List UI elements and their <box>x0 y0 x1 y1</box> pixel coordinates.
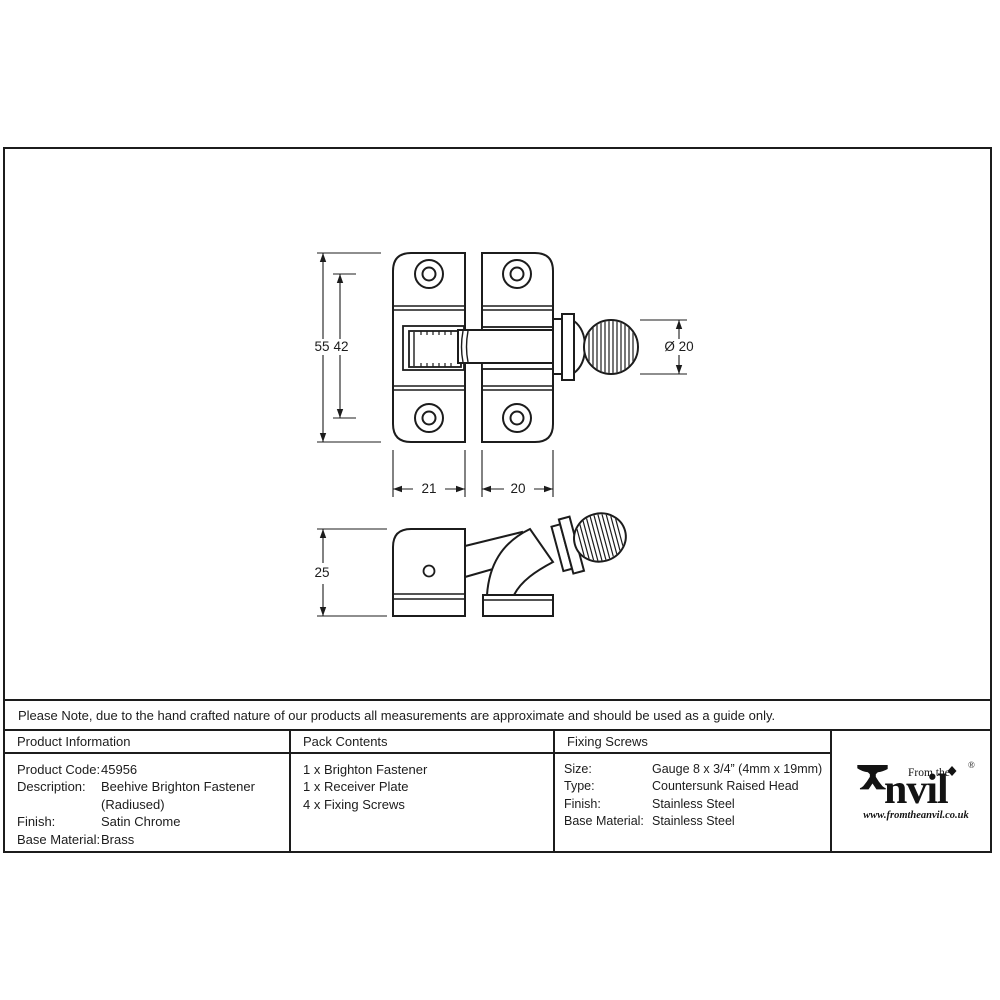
fixing-screws-header: Fixing Screws <box>555 731 830 754</box>
from-the-anvil-logo: nvil From the ® www.fromtheanvil.co.uk <box>832 741 990 841</box>
screw-size-row: Size: Gauge 8 x 3/4” (4mm x 19mm) <box>564 761 822 778</box>
logo-website: www.fromtheanvil.co.uk <box>863 810 969 821</box>
base-material-row: Base Material: Brass <box>17 831 281 848</box>
brand-logo-cell: nvil From the ® www.fromtheanvil.co.uk <box>832 731 990 851</box>
screw-type-row: Type: Countersunk Raised Head <box>564 778 822 795</box>
registered-mark: ® <box>968 760 975 770</box>
description-row: Description: Beehive Brighton Fastener <box>17 778 281 795</box>
pack-item: 1 x Receiver Plate <box>303 778 545 795</box>
description-row-2: (Radiused) <box>17 796 281 813</box>
screw-base-material-row: Base Material: Stainless Steel <box>564 813 822 830</box>
sheet-border: Please Note, due to the hand crafted nat… <box>3 147 992 853</box>
pack-item: 4 x Fixing Screws <box>303 796 545 813</box>
spec-table: Product Information Product Code: 45956 … <box>5 729 990 851</box>
pack-contents-column: Pack Contents 1 x Brighton Fastener 1 x … <box>291 731 555 851</box>
measurement-note-text: Please Note, due to the hand crafted nat… <box>18 708 775 723</box>
spec-sheet-page: 55 42 Ø 20 21 20 25 <box>0 0 1000 1000</box>
fixing-screws-column: Fixing Screws Size: Gauge 8 x 3/4” (4mm … <box>555 731 832 851</box>
logo-tagline: From the <box>908 767 950 779</box>
measurement-note-row: Please Note, due to the hand crafted nat… <box>5 699 990 729</box>
pack-item: 1 x Brighton Fastener <box>303 761 545 778</box>
product-information-column: Product Information Product Code: 45956 … <box>5 731 291 851</box>
product-code-row: Product Code: 45956 <box>17 761 281 778</box>
pack-contents-header: Pack Contents <box>291 731 553 754</box>
product-information-header: Product Information <box>5 731 289 754</box>
screw-finish-row: Finish: Stainless Steel <box>564 796 822 813</box>
finish-row: Finish: Satin Chrome <box>17 813 281 830</box>
